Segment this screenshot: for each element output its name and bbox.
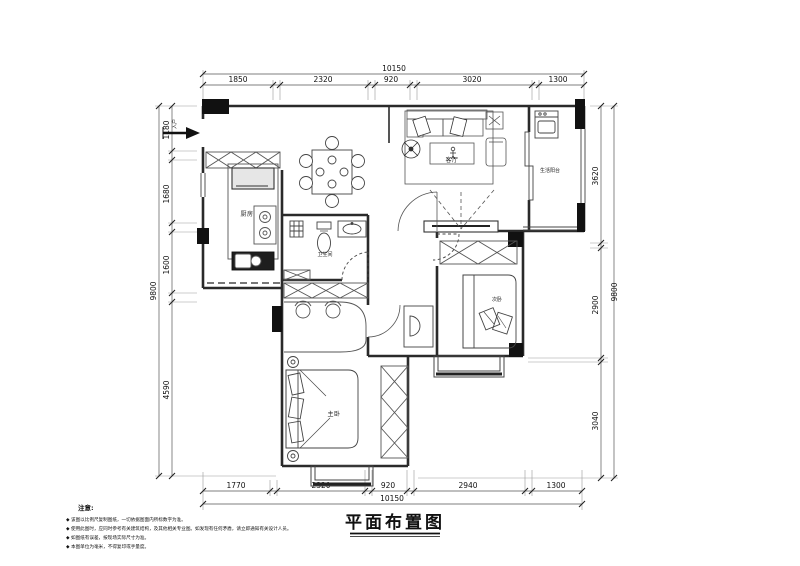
master-bedroom xyxy=(286,357,358,462)
dim-bottom-seg-5: 1300 xyxy=(546,481,565,490)
dim-top-seg-2: 2320 xyxy=(313,75,332,84)
title-block: 平面布置图 xyxy=(345,512,445,537)
dim-right-seg-2: 2900 xyxy=(591,295,600,314)
desk-chair xyxy=(410,316,420,336)
door-study xyxy=(368,305,400,337)
dim-left-seg-2: 1680 xyxy=(162,184,171,203)
column xyxy=(197,228,209,244)
entry-label: 入户 xyxy=(171,119,178,129)
dim-right-seg-3: 3040 xyxy=(591,411,600,430)
storage xyxy=(284,241,517,458)
notes-item-4: ◆ 本图单位为毫米，不得复印或手量度。 xyxy=(66,543,149,550)
hall-closet xyxy=(284,283,368,298)
study-nook xyxy=(284,301,366,352)
corridor-desk xyxy=(404,306,433,347)
dim-left-seg-4: 4590 xyxy=(162,380,171,399)
dim-top-seg-4: 3020 xyxy=(462,75,481,84)
notes-item-2: ◆ 使用此图时，应同时参考有关建筑结构，及其他相关专业图。如发现有任何矛盾，请立… xyxy=(66,525,292,532)
balcony xyxy=(535,111,558,138)
dining-set xyxy=(300,137,365,208)
column xyxy=(577,203,585,232)
living-label: 客厅 xyxy=(445,156,458,164)
shower-unit xyxy=(290,221,303,237)
washbasin xyxy=(338,221,366,237)
bathroom xyxy=(290,221,368,280)
stool xyxy=(296,304,310,318)
notes-item-1: ◆ 该图以比例尺复制图纸，一切依据图面内所标数字为准。 xyxy=(66,516,186,523)
drawing-title: 平面布置图 xyxy=(345,512,445,533)
kitchen-label: 厨房 xyxy=(240,210,253,218)
shoe-cabinet xyxy=(284,270,310,280)
dim-right-seg-1: 3620 xyxy=(591,166,600,185)
dim-bottom-seg-3: 920 xyxy=(381,481,396,490)
side-table-mark xyxy=(489,116,500,125)
dim-right-total: 9800 xyxy=(610,282,619,301)
kitchen-cabinet-row xyxy=(206,152,280,168)
second-bedroom xyxy=(433,234,516,348)
notes-item-3: ◆ 如图纸有误差，按现场实际尺寸为准。 xyxy=(66,534,149,541)
master-wardrobe xyxy=(381,366,408,458)
sofa xyxy=(407,110,487,137)
nightstand xyxy=(288,357,299,368)
dim-bottom-seg-4: 2940 xyxy=(458,481,477,490)
column xyxy=(202,99,229,114)
bathroom-door xyxy=(342,252,368,280)
master-bed xyxy=(286,370,358,448)
dim-left-seg-3: 1600 xyxy=(162,255,171,274)
bathroom-label: 卫生间 xyxy=(317,251,332,258)
dim-top-total: 10150 xyxy=(382,64,406,73)
dim-top-seg-1: 1850 xyxy=(228,75,247,84)
column xyxy=(272,306,282,332)
stool xyxy=(326,304,340,318)
master-bay-window xyxy=(311,466,373,486)
column xyxy=(509,343,523,357)
dim-top-seg-5: 1300 xyxy=(548,75,567,84)
dim-left-total: 9800 xyxy=(149,281,158,300)
dim-top-seg-3: 920 xyxy=(384,75,399,84)
toilet xyxy=(317,222,331,253)
living-room xyxy=(402,110,506,184)
second-wardrobe xyxy=(440,241,517,264)
dim-bottom-total: 10150 xyxy=(380,494,404,503)
kitchen-sink xyxy=(232,252,274,270)
notes-heading: 注意: xyxy=(78,503,94,512)
dimension-extension-lines xyxy=(155,70,618,510)
armchair xyxy=(486,138,506,166)
dim-left xyxy=(156,103,175,479)
notes-block: 注意: ◆ 该图以比例尺复制图纸，一切依据图面内所标数字为准。 ◆ 使用此图时，… xyxy=(66,503,292,550)
washing-machine xyxy=(535,111,558,138)
column xyxy=(575,99,585,129)
floorplan-page: 10150 1850 2320 920 3020 1300 1770 2320 … xyxy=(0,0,800,566)
master-label: 主卧 xyxy=(327,410,340,418)
stove xyxy=(254,206,276,244)
nightstand xyxy=(288,451,299,462)
dim-bottom-seg-1: 1770 xyxy=(226,481,245,490)
second-label: 次卧 xyxy=(492,296,502,303)
balcony-bottom-window xyxy=(523,227,584,230)
balcony-label: 生活阳台 xyxy=(540,167,560,174)
floorplan-drawing: 10150 1850 2320 920 3020 1300 1770 2320 … xyxy=(0,0,800,566)
second-bedroom-bay-window xyxy=(434,356,504,377)
tv-console xyxy=(424,190,498,232)
second-bed xyxy=(463,275,516,348)
